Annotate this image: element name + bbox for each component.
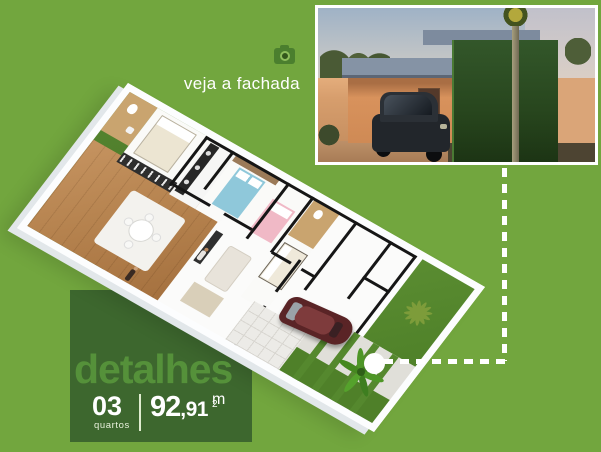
- badge-divider: [139, 394, 141, 431]
- shrub: [318, 120, 346, 150]
- bedrooms-label: quartos: [94, 420, 130, 431]
- dark-green-feature-wall: [452, 40, 558, 162]
- connector-dash-vertical: [502, 168, 507, 361]
- camera-icon: [274, 48, 295, 64]
- palm-crown: [499, 8, 532, 26]
- car-windshield: [384, 95, 432, 115]
- right-wall: [558, 78, 595, 143]
- connector-dash-horizontal: [384, 359, 508, 364]
- area-decimal: ,91: [180, 398, 208, 421]
- area-unit-letter: m: [212, 391, 225, 409]
- distant-tree: [565, 38, 591, 82]
- bedrooms-count: 03: [92, 393, 122, 420]
- facade-photo-scene: [318, 8, 595, 162]
- details-title: detalhes: [74, 349, 232, 390]
- palm-core: [357, 368, 365, 376]
- area-main: 92: [150, 391, 180, 423]
- camera-lens: [280, 51, 290, 61]
- carport-roof-slab: [342, 58, 464, 78]
- facade-label: veja a fachada: [172, 74, 300, 94]
- flyer-canvas: veja a fachada de: [0, 0, 601, 452]
- area-unit: m2: [212, 403, 218, 420]
- area-value: 92,91m2: [150, 391, 218, 424]
- facade-callout[interactable]: veja a fachada: [172, 48, 300, 94]
- palm-trunk: [512, 8, 519, 162]
- details-badge-row: 03 quartos 92,91m2: [92, 391, 252, 439]
- connector-dot: [364, 353, 385, 374]
- facade-photo[interactable]: [315, 5, 598, 165]
- car-headlight: [440, 124, 447, 129]
